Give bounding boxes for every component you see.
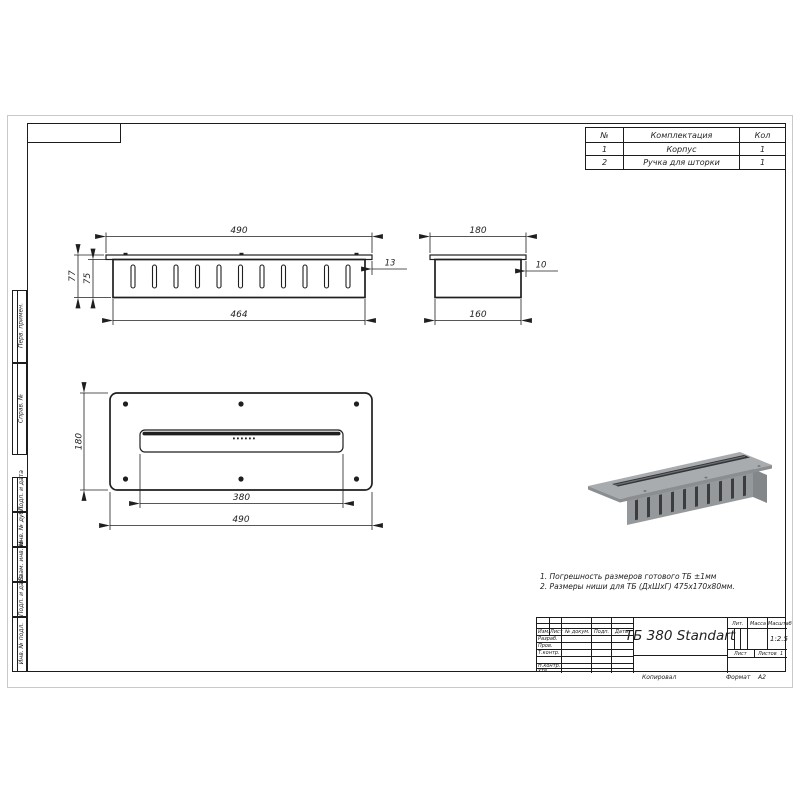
dim-plan-slot: 380 <box>233 493 250 503</box>
tb-col-doc: № докум. <box>565 629 590 635</box>
dim-front-flange: 13 <box>385 259 396 269</box>
tb-listov-label: Листов <box>758 651 777 657</box>
dim-plan-overall: 490 <box>232 515 249 525</box>
dim-side-body: 160 <box>469 310 486 320</box>
dim-side-flange: 10 <box>536 261 547 271</box>
tb-row-prov: Пров. <box>538 643 553 649</box>
copied-label: Копировал <box>642 674 676 681</box>
tb-list-label: Лист <box>734 651 747 657</box>
iso-view <box>588 452 772 525</box>
dim-front-overall: 490 <box>230 226 247 236</box>
note-line-2: 2. Размеры ниши для ТБ (ДхШхГ) 475х170х8… <box>540 582 735 592</box>
tb-col-izm: Изм. <box>538 629 550 635</box>
tb-col-sign: Подп. <box>594 629 609 635</box>
tb-row-utv: Утв. <box>538 668 549 674</box>
drawing-canvas: № Комплектация Кол 1 Корпус 1 2 Ручка дл… <box>0 0 800 800</box>
note-line-1: 1. Погрешность размеров готового ТБ ±1мм <box>540 572 735 582</box>
format-label: Формат <box>726 674 750 681</box>
dim-side-overall: 180 <box>469 226 486 236</box>
shutter-handle-holes <box>233 438 255 440</box>
tb-scale-label: Масштаб <box>768 621 792 627</box>
title-block: Изм. Лист № докум. Подп. Дата Разраб. Пр… <box>536 617 786 672</box>
tb-listov-value: 1 <box>780 651 783 657</box>
tb-row-razrab: Разраб. <box>538 636 558 642</box>
tb-lit-label: Лит. <box>732 621 744 627</box>
dim-front-h-outer: 77 <box>68 270 78 282</box>
side-view: 180 160 10 <box>430 226 558 325</box>
dim-front-h-inner: 75 <box>83 273 93 285</box>
format-value: А2 <box>758 674 766 681</box>
tb-col-list: Лист <box>550 629 563 635</box>
dim-plan-depth: 180 <box>75 433 85 450</box>
plan-view: 180 380 490 <box>75 393 373 530</box>
tb-mass-label: Масса <box>750 621 766 627</box>
dim-front-body: 464 <box>230 310 247 320</box>
views-svg: 490 464 77 75 13 180 160 10 <box>0 0 800 800</box>
tb-scale-value: 1:2.5 <box>770 635 788 643</box>
notes: 1. Погрешность размеров готового ТБ ±1мм… <box>540 572 735 592</box>
tb-title: ТБ 380 Standart <box>633 620 727 652</box>
tb-row-tcontr: Т.контр. <box>538 650 560 656</box>
front-view: 490 464 77 75 13 <box>68 226 407 325</box>
